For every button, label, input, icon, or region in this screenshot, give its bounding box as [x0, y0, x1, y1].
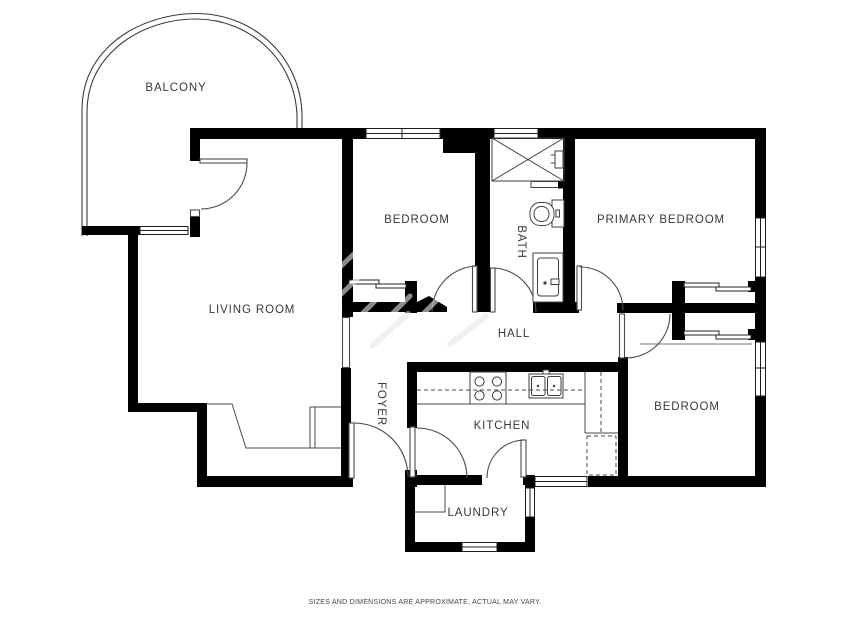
- vanity-sink-fixture: [533, 253, 563, 302]
- kitchen-sink-fixture: [529, 370, 563, 398]
- window-laundry-right: [526, 488, 535, 517]
- balcony-door: [191, 159, 248, 217]
- floor-plan-drawing: [0, 0, 850, 620]
- window-kitchen-bottom: [535, 477, 587, 487]
- window-bath-top: [494, 129, 538, 139]
- room-label-living-room: LIVING ROOM: [209, 304, 296, 316]
- shower-fixture: [492, 138, 566, 189]
- room-label-primary-bedroom: PRIMARY BEDROOM: [597, 214, 725, 226]
- kitchen-door: [410, 427, 467, 478]
- room-label-bath: BATH: [515, 225, 527, 258]
- primary-bedroom-door: [577, 266, 623, 310]
- window-primary-right: [756, 218, 766, 277]
- stove-fixture: [470, 372, 506, 404]
- primary-closet-doors: [684, 283, 751, 291]
- watermark: [335, 250, 486, 346]
- doors: [191, 159, 671, 478]
- disclaimer-text: SIZES AND DIMENSIONS ARE APPROXIMATE, AC…: [0, 599, 850, 606]
- window-laundry-bottom: [462, 543, 497, 552]
- living-room-opening: [343, 318, 350, 368]
- balcony-arch: [82, 14, 302, 237]
- laundry-door: [487, 440, 526, 478]
- window-balcony-wall: [140, 227, 188, 235]
- bedroom2-door: [620, 314, 671, 358]
- room-label-hall: HALL: [498, 328, 530, 340]
- floor-plan-canvas: BALCONY LIVING ROOM BEDROOM BATH PRIMARY…: [0, 0, 850, 620]
- walls: [82, 128, 766, 552]
- room-label-balcony: BALCONY: [145, 82, 206, 94]
- front-door: [349, 423, 408, 478]
- window-bedroom-top: [366, 129, 440, 139]
- toilet-fixture: [530, 200, 564, 227]
- room-label-bedroom2: BEDROOM: [654, 401, 720, 413]
- bedroom2-closet-doors: [684, 331, 751, 339]
- window-bedroom2-right: [756, 342, 766, 396]
- bath-door: [491, 268, 537, 312]
- room-label-laundry: LAUNDRY: [447, 507, 508, 519]
- room-label-bedroom: BEDROOM: [384, 214, 450, 226]
- room-label-kitchen: KITCHEN: [474, 420, 531, 432]
- room-label-foyer: FOYER: [375, 382, 387, 426]
